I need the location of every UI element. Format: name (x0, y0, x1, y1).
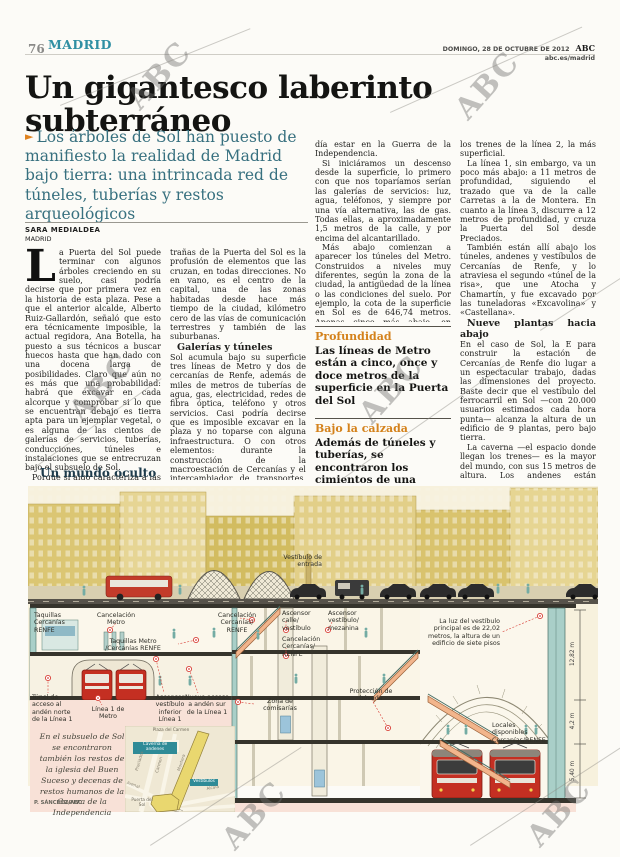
lead-bullet-icon: ► (25, 130, 33, 143)
label-locales-disponibles: Locales disponibles Cercanías/RENFE (492, 722, 542, 744)
col4-subhead: Nueve plantas hacia abajo (460, 318, 596, 340)
byline: SARA MEDIALDEA (25, 226, 100, 234)
col4-paragraph-1: los trenes de la línea 2, la más superfi… (460, 140, 596, 159)
col4-paragraph-2: La línea 1, sin embargo, va un poco más … (460, 159, 596, 243)
masthead-right: DOMINGO, 28 DE OCTUBRE DE 2012ABC abc.es… (443, 36, 595, 62)
byline-rule (25, 222, 308, 223)
label-tunel-acceso: Túnel de acceso al andén norte de la Lín… (32, 694, 78, 723)
infographic-credit: P. SÁNCHEZ/ABC (34, 800, 82, 806)
label-ascensor-mezanina: Ascensor vestíbulo/ mezanina (328, 610, 372, 632)
lead-text: Los árboles de Sol han puesto de manifie… (25, 128, 297, 223)
city-bus (106, 576, 172, 600)
label-linea1-metro: Línea 1 de Metro (86, 706, 130, 721)
brand-logo: ABC (576, 43, 595, 53)
col3-paragraph-1: día estar en la Guerra de la Independenc… (315, 140, 451, 159)
lead-paragraph: ►Los árboles de Sol han puesto de manifi… (25, 128, 317, 224)
col4-paragraph-5: La caverna —el espacio donde llegan los … (460, 443, 596, 480)
map-label-plaza-carmen: Plaza del Carmen (148, 728, 194, 733)
label-ascensor-calle: Ascensor calle/ vestíbulo (282, 610, 322, 632)
label-taquillas-cercanias: Taquillas Cercanías RENFE (34, 612, 76, 634)
label-nuevo-acceso: Nuevo acceso a andén sur de la Línea 1 (184, 694, 230, 716)
map-label-puerta-del-sol: Puerta del Sol (128, 798, 156, 807)
label-vestibulo-entrada: Vestíbulo de entrada (274, 554, 322, 569)
section-name: MADRID (48, 37, 112, 52)
col3-paragraph-3: Más abajo comienzan a aparecer los túnel… (315, 243, 451, 322)
label-cancelacion-cercanias-der: Cancelación Cercanías/ RENFE (282, 636, 326, 658)
right-wall (548, 608, 565, 803)
dimension-12-82m: 12,82 m (570, 634, 576, 674)
infographic-caption: En el subsuelo de Sol se encontraron tam… (38, 732, 126, 819)
col4-paragraph-4: En el caso de Sol, la E para construir l… (460, 340, 596, 443)
byline-place: MADRID (25, 235, 52, 243)
label-taquillas-metro: Taquillas Metro /Cercanías RENFE (102, 638, 164, 653)
body-column-1: La Puerta del Sol puede terminar con alg… (25, 248, 161, 480)
label-cancelacion-cercanias-izq: Cancelación Cercanías/ RENFE (216, 612, 258, 634)
drop-cap: L (25, 248, 59, 284)
callout1-title: Profundidad (315, 330, 451, 343)
col2-paragraph-2: Sol acumula bajo su superficie tres líne… (170, 353, 306, 480)
col3-paragraph-2: Si iniciáramos un descenso desde la supe… (315, 159, 451, 243)
body-column-4: los trenes de la línea 2, la más superfi… (460, 140, 596, 480)
body-column-3: día estar en la Guerra de la Independenc… (315, 140, 451, 322)
infographic: Vestíbulo de entrada Taquillas Cercanías… (28, 482, 598, 814)
newspaper-page: { "page": { "number": "76", "section": "… (0, 0, 620, 846)
infographic-title: Un mundo oculto (40, 466, 156, 480)
col2-paragraph-1: trañas de la Puerta del Sol es la profus… (170, 248, 306, 342)
label-cancelacion-metro: Cancelación Metro (88, 612, 144, 627)
label-luz-vestibulo: La luz del vestíbulo principal es de 22,… (426, 618, 500, 647)
body-column-2: trañas de la Puerta del Sol es la profus… (170, 248, 306, 480)
label-zona-comisarias: Zona de comisarías (256, 698, 304, 713)
col2-subhead: Galerías y túneles (170, 342, 306, 353)
label-proteccion-boveda: Protección de bóveda (348, 688, 394, 703)
dimension-4-2m: 4,2 m (570, 701, 576, 741)
